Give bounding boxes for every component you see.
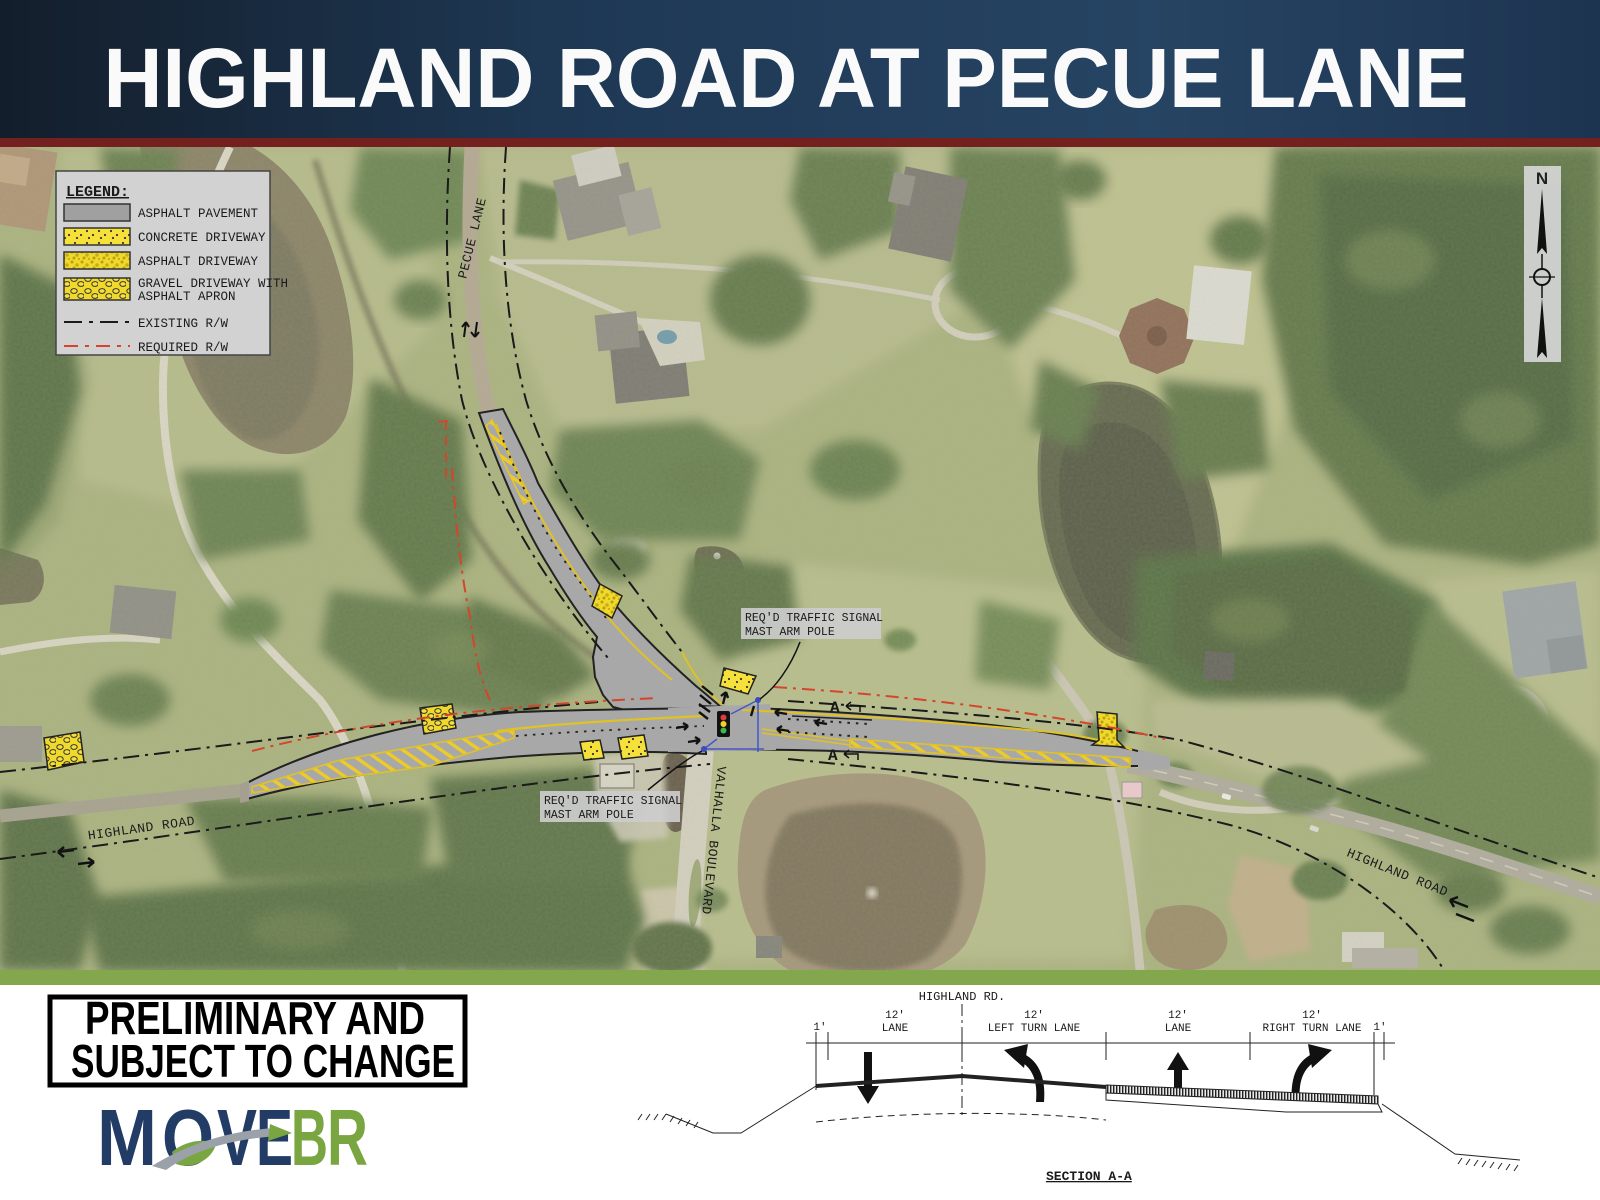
svg-text:A: A [830, 699, 840, 717]
svg-text:1': 1' [813, 1022, 826, 1034]
svg-text:GRAVEL DRIVEWAY WITH: GRAVEL DRIVEWAY WITH [138, 277, 288, 291]
svg-text:ASPHALT DRIVEWAY: ASPHALT DRIVEWAY [138, 255, 259, 269]
svg-text:REQ'D TRAFFIC SIGNAL: REQ'D TRAFFIC SIGNAL [544, 795, 682, 808]
svg-text:REQ'D TRAFFIC SIGNAL: REQ'D TRAFFIC SIGNAL [745, 612, 883, 625]
svg-text:12': 12' [1024, 1010, 1044, 1022]
svg-text:LEFT TURN LANE: LEFT TURN LANE [988, 1023, 1081, 1035]
svg-text:N: N [1536, 169, 1548, 188]
svg-text:HIGHLAND ROAD AT PECUE LANE: HIGHLAND ROAD AT PECUE LANE [104, 31, 1469, 125]
svg-text:LANE: LANE [1165, 1023, 1192, 1035]
svg-text:SECTION A-A: SECTION A-A [1046, 1169, 1132, 1184]
svg-text:CONCRETE DRIVEWAY: CONCRETE DRIVEWAY [138, 231, 266, 245]
svg-text:R: R [327, 1093, 368, 1182]
svg-text:MAST ARM POLE: MAST ARM POLE [544, 809, 634, 822]
svg-text:MAST ARM POLE: MAST ARM POLE [745, 626, 835, 639]
svg-text:LEGEND:: LEGEND: [66, 184, 129, 201]
svg-text:HIGHLAND RD.: HIGHLAND RD. [919, 990, 1005, 1004]
svg-text:12': 12' [1168, 1010, 1188, 1022]
svg-text:REQUIRED R/W: REQUIRED R/W [138, 341, 229, 355]
svg-text:12': 12' [885, 1010, 905, 1022]
svg-text:LANE: LANE [882, 1023, 909, 1035]
svg-text:M: M [97, 1093, 157, 1182]
svg-text:ASPHALT APRON: ASPHALT APRON [138, 290, 236, 304]
svg-text:O: O [162, 1093, 214, 1182]
svg-text:ASPHALT PAVEMENT: ASPHALT PAVEMENT [138, 207, 259, 221]
svg-text:1': 1' [1373, 1022, 1386, 1034]
svg-text:RIGHT TURN LANE: RIGHT TURN LANE [1262, 1023, 1361, 1035]
svg-text:SUBJECT TO CHANGE: SUBJECT TO CHANGE [71, 1035, 455, 1087]
svg-text:12': 12' [1302, 1010, 1322, 1022]
svg-text:EXISTING R/W: EXISTING R/W [138, 317, 229, 331]
svg-text:A: A [828, 747, 838, 765]
svg-text:B: B [291, 1093, 328, 1182]
